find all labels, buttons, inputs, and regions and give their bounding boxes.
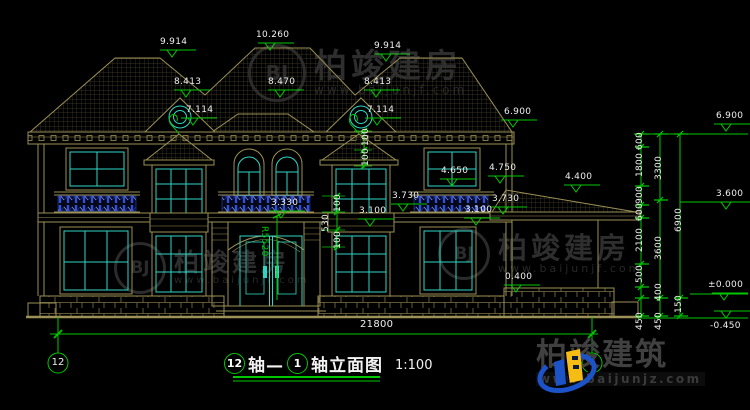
watermark-logo-icon: BJ bbox=[248, 44, 306, 102]
title-suffix: 轴立面图 bbox=[311, 351, 383, 376]
drawing-title: 12 轴— 1 轴立面图 1:100 bbox=[224, 351, 432, 376]
left-balcony-railing bbox=[58, 196, 136, 211]
watermark-logo-icon: BJ bbox=[114, 242, 166, 294]
watermark-brand: 柏竣建房 bbox=[498, 233, 642, 263]
title-scale: 1:100 bbox=[395, 358, 432, 373]
watermark-url: www.baijunjf.com bbox=[314, 84, 467, 97]
watermark: BJ 柏竣建房 www.baijunjf.com bbox=[438, 228, 642, 280]
watermark-url: www.baijunjf.com bbox=[174, 276, 310, 287]
watermark-brand: 柏竣建房 bbox=[314, 49, 467, 84]
brand-logo-icon bbox=[536, 340, 600, 400]
watermark: BJ 柏竣建房 www.baijunjf.com bbox=[114, 242, 310, 294]
title-text: 轴— bbox=[248, 351, 284, 376]
watermark: BJ 柏竣建房 www.baijunjf.com bbox=[248, 44, 467, 102]
watermark-brand: 柏竣建房 bbox=[174, 250, 310, 276]
brand-logo: 柏竣建筑 www.baijunjz.com bbox=[536, 340, 705, 386]
watermark-url: www.baijunjf.com bbox=[498, 263, 642, 275]
title-axis-bubble-1: 1 bbox=[287, 353, 308, 374]
cad-elevation-screenshot: BJ 柏竣建房 www.baijunjf.com BJ 柏竣建房 www.bai… bbox=[0, 0, 750, 410]
title-axis-bubble-12: 12 bbox=[224, 353, 245, 374]
axis-marker-12: 12 bbox=[48, 353, 68, 373]
watermark-logo-icon: BJ bbox=[438, 228, 490, 280]
